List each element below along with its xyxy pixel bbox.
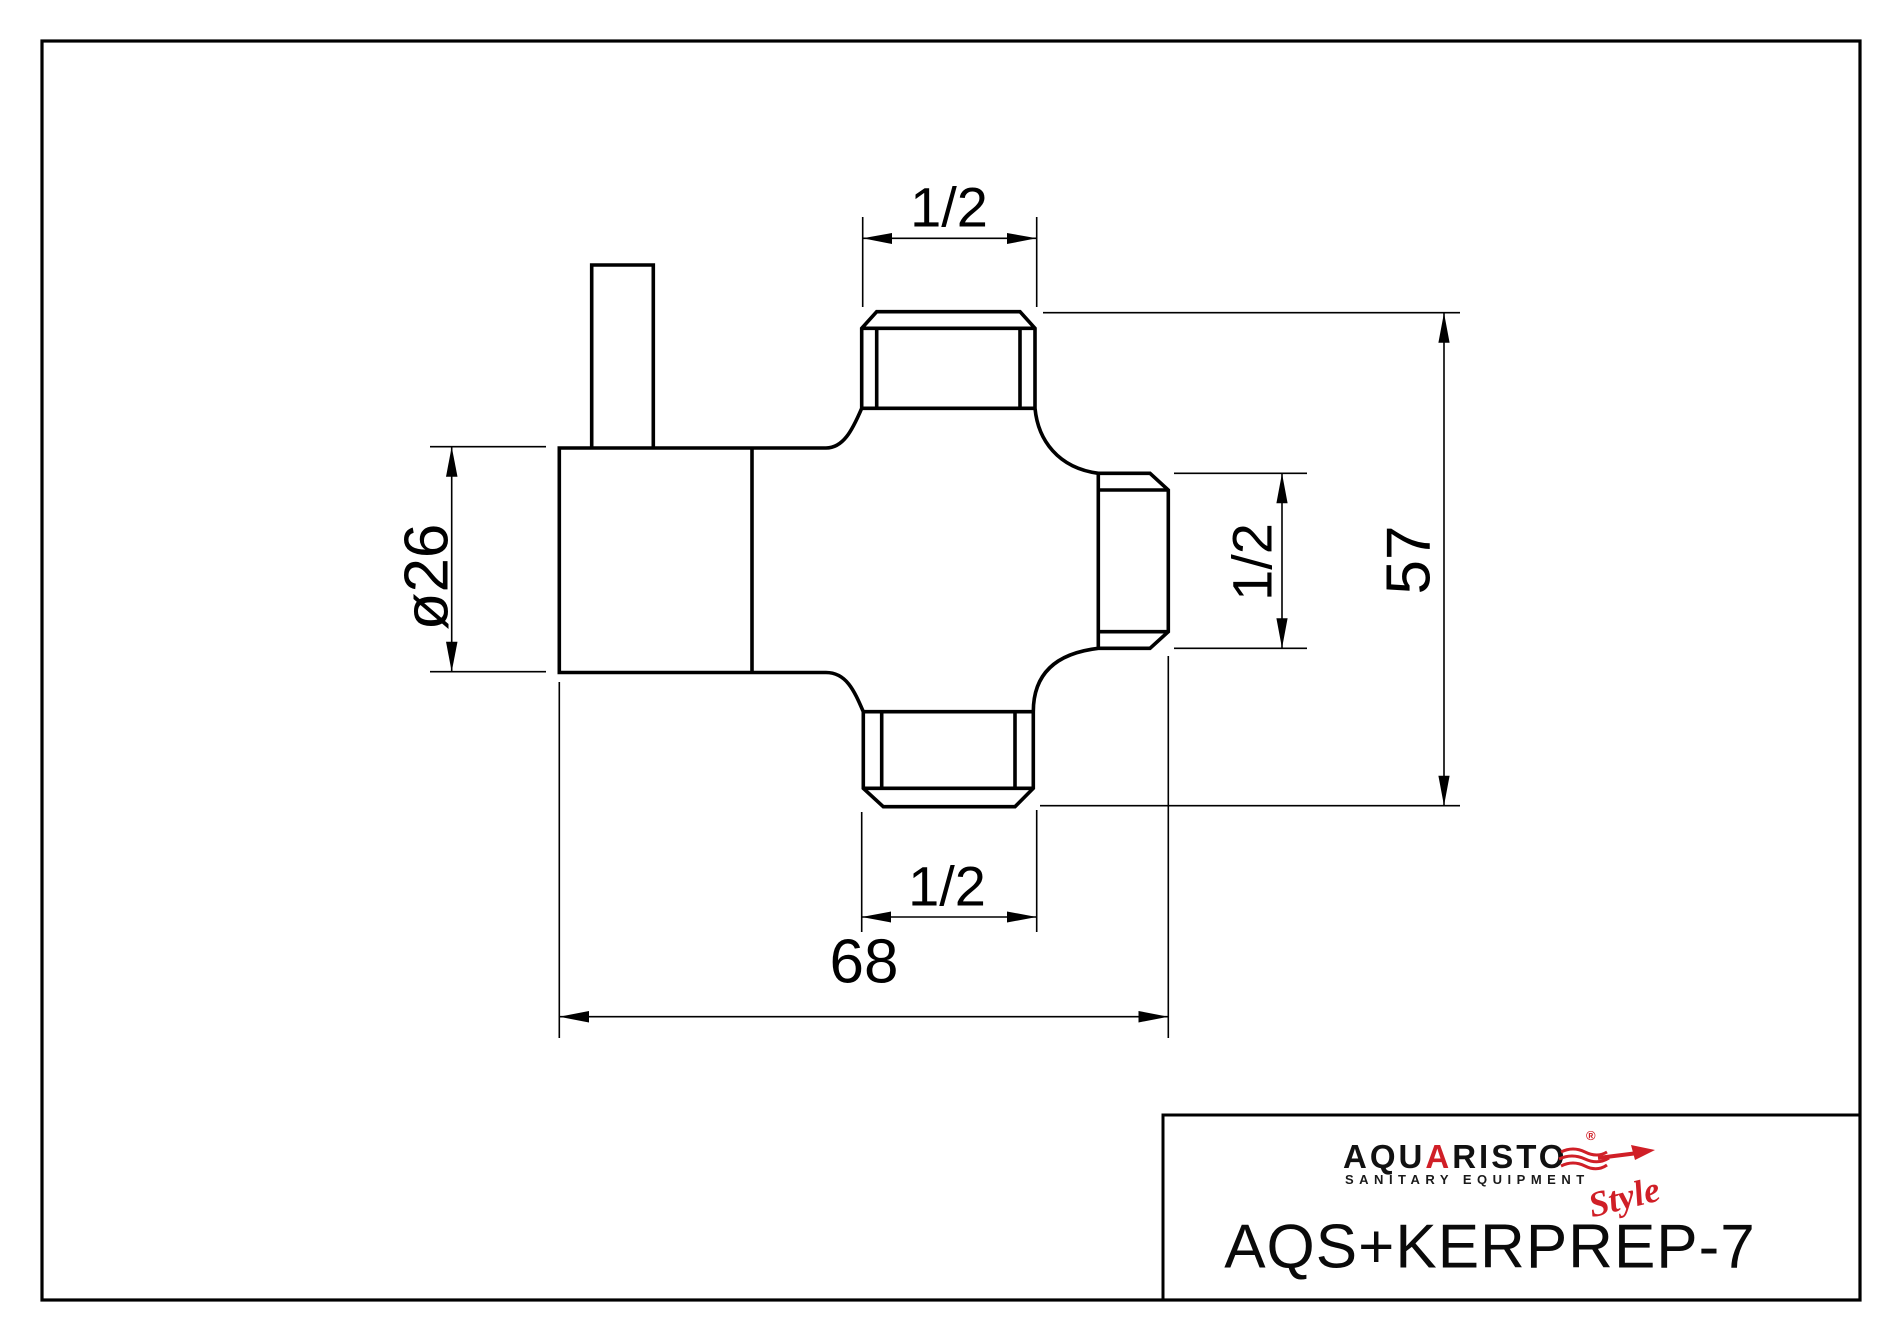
arrow-icon (863, 233, 892, 244)
logo-wordmark: AQUARISTO (1343, 1138, 1567, 1176)
arrow-icon (1438, 776, 1449, 806)
logo-text-part2: A (1425, 1138, 1452, 1175)
arrow-icon (1007, 912, 1037, 923)
dim-flange-diameter-label: ø26 (392, 524, 463, 631)
drawing-sheet: 1/2 ø26 1/2 57 1/2 68 AQUARISTO ® SANITA… (0, 0, 1900, 1328)
part-number: AQS+KERPREP-7 (1224, 1212, 1756, 1283)
valve-body-outline (559, 312, 1168, 807)
top-port-thread-lines (862, 328, 1035, 408)
arrow-icon (1276, 618, 1287, 648)
arrow-icon (862, 912, 891, 923)
dim-total-width-label: 68 (830, 927, 899, 998)
dim-bottom-port-width-label: 1/2 (908, 854, 986, 919)
dim-right-port-height-label: 1/2 (1220, 523, 1285, 601)
arrow-icon (559, 1011, 589, 1023)
stub-pipe-outline (592, 265, 654, 448)
dim-total-height-label: 57 (1374, 526, 1445, 595)
arrow-icon (1276, 473, 1287, 503)
logo-text-part1: AQU (1343, 1138, 1425, 1175)
arrow-icon (446, 447, 458, 477)
arrow-icon (446, 642, 458, 672)
dim-top-port-width-label: 1/2 (910, 175, 988, 240)
arrow-icon (1438, 313, 1449, 343)
arrow-icon (1139, 1011, 1169, 1023)
bottom-port-thread-lines (863, 712, 1033, 789)
part-outline (559, 265, 1168, 807)
logo-text-part3: RIST (1452, 1138, 1539, 1175)
right-port-thread-lines (1098, 473, 1168, 648)
arrow-icon (1007, 233, 1037, 244)
